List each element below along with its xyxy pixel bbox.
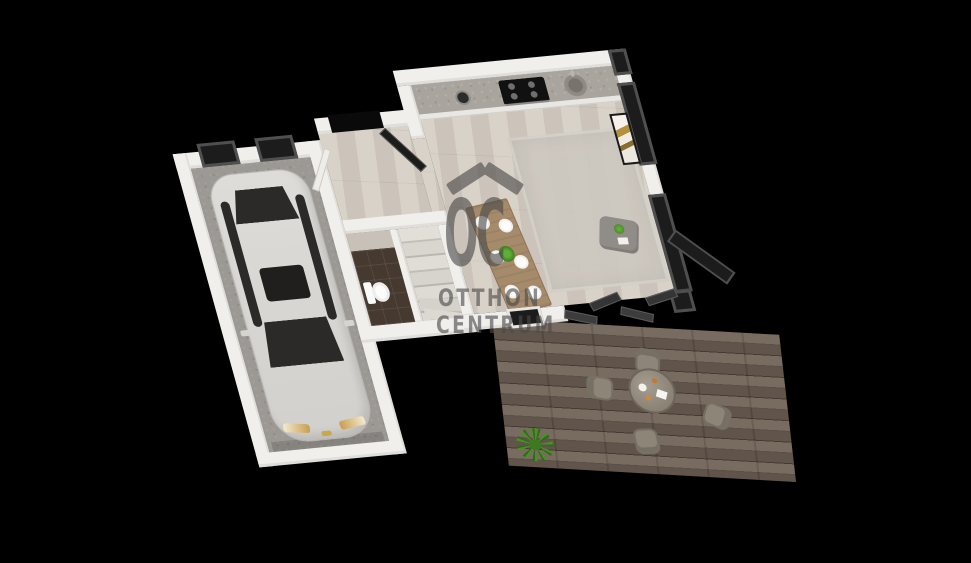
cup-on-table xyxy=(652,378,658,383)
garage-window xyxy=(254,135,298,162)
cup-on-table xyxy=(646,395,652,400)
dining-plate xyxy=(473,214,492,231)
floor-plan-render: OC OTTHON CENTRUM xyxy=(0,0,971,500)
terrace-deck xyxy=(492,318,796,482)
car-headlight-right xyxy=(338,416,366,431)
house-plan xyxy=(156,32,923,563)
dining-plate xyxy=(525,284,544,301)
car-sunroof xyxy=(258,264,311,301)
napkin-on-table xyxy=(656,389,668,400)
terrace-plant xyxy=(515,427,556,462)
car-rear-window xyxy=(226,185,301,225)
kitchen-sink xyxy=(562,74,590,98)
car-side-mirror-right xyxy=(343,320,355,327)
outdoor-chair xyxy=(586,374,613,401)
coffee-table-plant xyxy=(614,223,624,234)
car-headlight-left xyxy=(283,423,311,433)
coffee-table xyxy=(599,215,639,255)
car-badge xyxy=(321,430,332,436)
coffee-table-book xyxy=(617,237,629,244)
car-windshield xyxy=(258,316,344,368)
folding-door-leaf xyxy=(620,306,654,322)
car-side-mirror-left xyxy=(240,330,252,337)
outdoor-table xyxy=(626,367,678,415)
counter-basin xyxy=(454,90,473,106)
dining-plate xyxy=(503,283,522,300)
dining-plate xyxy=(496,217,515,234)
outdoor-chair xyxy=(701,400,734,432)
sink-faucet xyxy=(570,70,576,76)
bottom-window xyxy=(506,306,545,329)
outdoor-chair xyxy=(632,428,662,455)
garage-window xyxy=(196,140,240,167)
plate-on-table xyxy=(638,383,647,391)
